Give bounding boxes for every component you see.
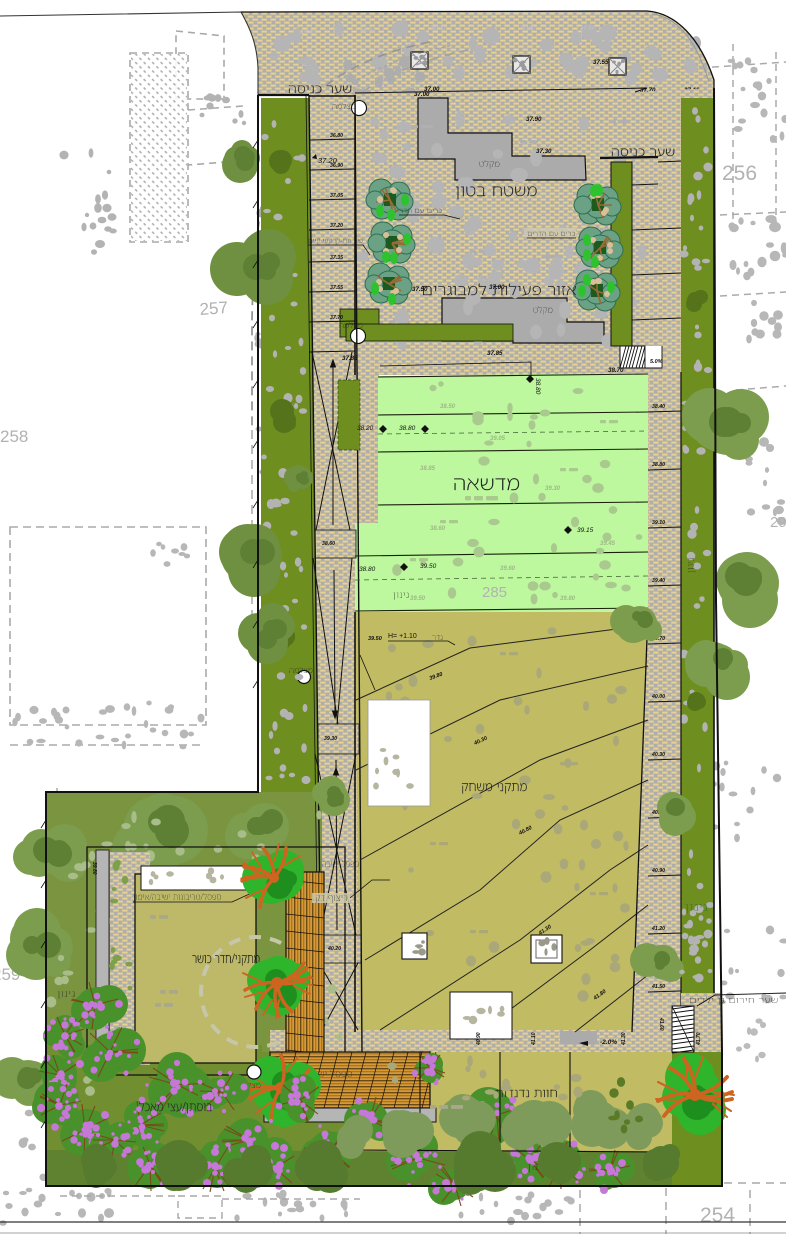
svg-text:40.90: 40.90 xyxy=(476,1032,482,1046)
svg-text:37.20: 37.20 xyxy=(318,156,338,165)
svg-text:37.90: 37.90 xyxy=(526,116,542,123)
svg-text:39.40: 39.40 xyxy=(652,578,665,584)
svg-text:36.50: 36.50 xyxy=(360,28,376,34)
svg-text:258: 258 xyxy=(0,427,28,446)
svg-text:29: 29 xyxy=(770,514,786,531)
svg-text:37.35: 37.35 xyxy=(330,255,343,261)
svg-text:41.50: 41.50 xyxy=(651,984,665,990)
svg-text:38.85: 38.85 xyxy=(420,466,436,472)
svg-text:256: 256 xyxy=(722,162,757,185)
svg-text:39.30: 39.30 xyxy=(324,736,337,742)
svg-text:H= +1.10: H= +1.10 xyxy=(388,633,417,640)
svg-text:39.80: 39.80 xyxy=(91,862,97,875)
svg-text:-2.0%: -2.0% xyxy=(600,1039,617,1046)
svg-text:5.0%: 5.0% xyxy=(650,359,663,365)
svg-text:37.50: 37.50 xyxy=(412,286,428,293)
svg-text:37.70: 37.70 xyxy=(330,315,343,321)
svg-text:36.80: 36.80 xyxy=(330,133,343,139)
svg-text:38.50: 38.50 xyxy=(440,404,456,410)
svg-text:37.00: 37.00 xyxy=(414,91,430,98)
svg-text:40.00: 40.00 xyxy=(651,694,665,700)
svg-text:38.80: 38.80 xyxy=(652,462,665,468)
svg-text:38.80: 38.80 xyxy=(534,378,541,395)
svg-text:38.60: 38.60 xyxy=(430,526,446,532)
svg-text:38.80: 38.80 xyxy=(399,425,416,432)
svg-text:41.30: 41.30 xyxy=(621,1032,627,1046)
svg-text:36.90: 36.90 xyxy=(430,26,446,32)
svg-text:36.40: 36.40 xyxy=(300,30,316,36)
svg-text:38.60: 38.60 xyxy=(322,541,335,547)
svg-text:37.85: 37.85 xyxy=(487,350,503,357)
svg-text:38.70: 38.70 xyxy=(608,367,624,374)
svg-text:41.60: 41.60 xyxy=(658,1017,664,1031)
svg-text:40.20: 40.20 xyxy=(327,946,341,952)
svg-text:257: 257 xyxy=(199,298,229,319)
svg-text:39.60: 39.60 xyxy=(500,566,516,572)
svg-text:41.20: 41.20 xyxy=(651,926,665,932)
svg-text:41.70: 41.70 xyxy=(696,1032,702,1046)
svg-text:39.45: 39.45 xyxy=(600,541,616,547)
svg-text:39.50: 39.50 xyxy=(410,596,426,602)
svg-text:37.80: 37.80 xyxy=(580,26,596,32)
svg-text:40.30: 40.30 xyxy=(651,752,665,758)
svg-text:37.05: 37.05 xyxy=(330,193,343,199)
svg-text:254: 254 xyxy=(700,1204,735,1227)
svg-text:39.30: 39.30 xyxy=(545,486,561,492)
svg-text:39.50: 39.50 xyxy=(420,563,437,570)
svg-text:39.50: 39.50 xyxy=(368,636,382,642)
svg-text:37.00: 37.00 xyxy=(489,284,505,291)
svg-text:37.55: 37.55 xyxy=(330,285,343,291)
svg-text:38.20: 38.20 xyxy=(357,425,374,432)
svg-text:37.55: 37.55 xyxy=(593,59,609,66)
svg-text:41.10: 41.10 xyxy=(531,1032,537,1046)
svg-text:37.20: 37.20 xyxy=(330,223,343,229)
svg-text:38.80: 38.80 xyxy=(359,566,376,573)
svg-text:38.40: 38.40 xyxy=(652,404,665,410)
svg-text:39.10: 39.10 xyxy=(652,520,665,526)
svg-text:285: 285 xyxy=(482,584,507,601)
svg-text:37.40: 37.40 xyxy=(520,26,536,32)
svg-text:39.80: 39.80 xyxy=(560,596,576,602)
svg-text:40.90: 40.90 xyxy=(651,868,665,874)
svg-text:37.30: 37.30 xyxy=(536,148,552,155)
svg-text:39.15: 39.15 xyxy=(577,527,594,534)
svg-text:39.05: 39.05 xyxy=(490,436,506,442)
